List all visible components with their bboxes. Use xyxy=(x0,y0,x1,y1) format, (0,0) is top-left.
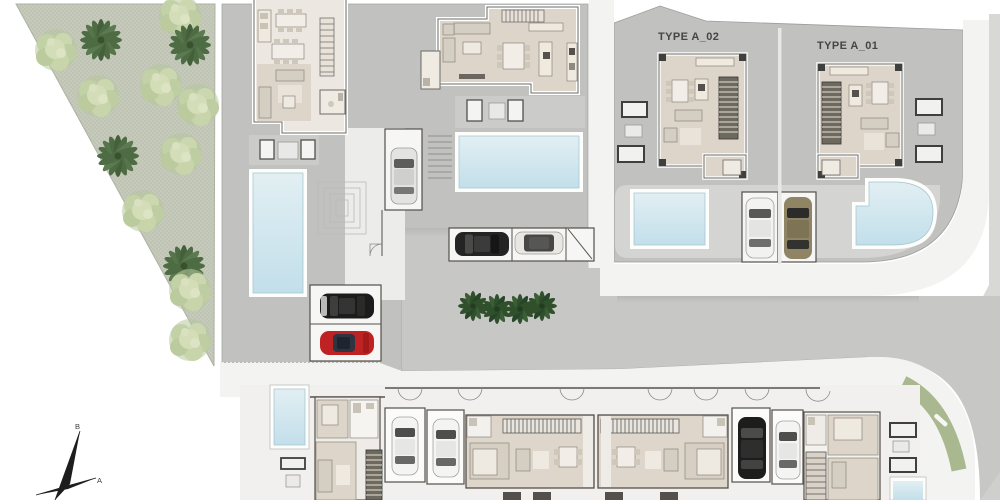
svg-text:B: B xyxy=(75,422,80,431)
svg-text:TYPE A_02: TYPE A_02 xyxy=(658,31,719,43)
svg-text:A: A xyxy=(97,476,102,485)
svg-text:TYPE A_01: TYPE A_01 xyxy=(817,40,878,52)
